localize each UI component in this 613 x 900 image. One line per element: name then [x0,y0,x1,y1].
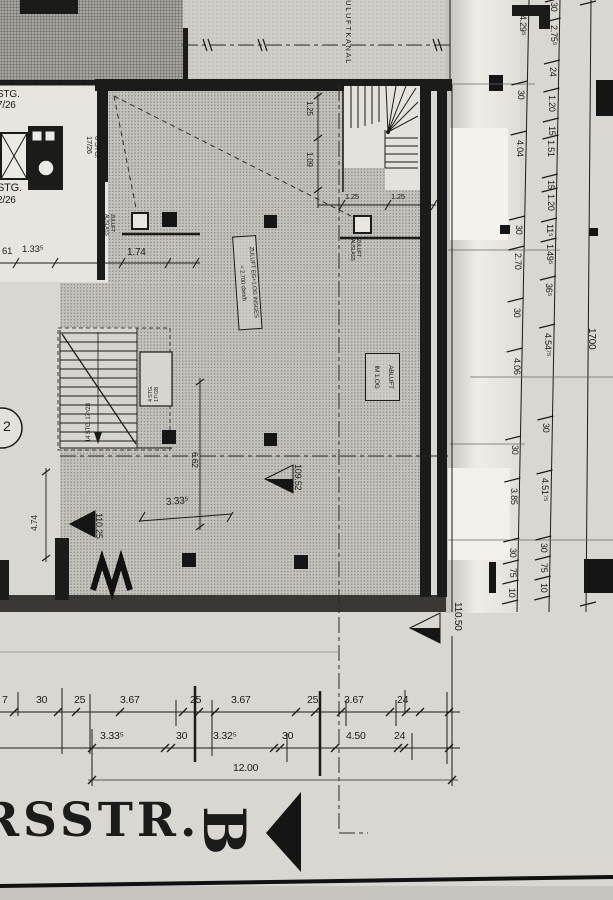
vent-left-line2: AUSLASS [103,214,109,236]
exhaust-note-line2: IM 1.OG [373,365,380,388]
dimension-label: 30 [176,731,187,743]
stair-core-mid-label: 6 STG. 17/26 [84,136,101,159]
duct-label: ZULUFTKANAL [344,0,352,65]
dimension-label: 12.00 [233,763,258,775]
outer-walls [0,0,550,600]
dimension-label: 30 [516,90,526,100]
dimension-label: 3.33⁵ [100,731,124,743]
dashed-diagonals [114,96,351,216]
dimension-label: 15 [546,180,556,190]
dim-109-vertical: 1.09 [304,152,313,167]
street-baseline [0,877,613,886]
linework [0,0,613,900]
dim-125-vertical: 1.25 [304,101,313,116]
dimension-label: 75 [539,563,549,573]
dimension-label: 1.51 [546,140,556,157]
dimension-label: 4.04 [515,140,525,157]
dimension-label: 30 [549,2,559,12]
dimension-label: 3.67 [231,695,251,707]
floor-plan-scan: ZULUFTKANAL STG. 7/26 6 STG. 17/26 STG. … [0,0,613,900]
dimension-label: 30 [512,308,522,318]
dimension-label: 30 [282,731,293,743]
dimension-label: 4.50 [346,731,366,743]
section-letter-b: B [191,806,256,855]
dim-125-b: 1.25 [391,193,405,201]
level-110-50: 110.50 [452,602,463,631]
dim-474: 4.74 [30,515,40,531]
dimension-label: 30 [541,423,551,433]
stair-box-label: 4 STG. 17⁵/28 [148,386,160,402]
dimension-label: 24 [397,695,408,707]
supply-note-line2: = 2.700 cbm/h [238,265,246,301]
dimension-label: 30 [36,695,47,707]
dim-overall-1700: 1700 [586,328,597,349]
section-arrow [266,792,301,872]
vent-left-line1: ZULUFT [109,214,115,232]
dimension-label: 2.70 [513,253,523,270]
drain-zigzag [93,560,130,590]
dimension-label: 4.54⁷⁵ [543,333,553,356]
dimension-label: 75 [508,568,518,578]
dim-662: 6.62 [189,452,199,468]
stair-core-lower-count: 2/26 [0,195,16,206]
exhaust-note-line1: ABLUFT [387,365,394,389]
dim-3335-interior: 3.33⁵ [166,495,189,508]
stair-box-line2: 17⁵/28 [154,387,160,402]
stair-core-lower-label: STG. [0,182,22,194]
level-110-25: 110.25 [94,513,104,539]
winder-stair [343,86,420,192]
dimension-label: 25 [307,695,318,707]
dimension-label: 30 [510,445,520,455]
stair-core-upper-count: 7/26 [0,100,16,111]
dimension-label: 1.20 [547,95,557,112]
dimension-label: 30 [508,548,518,558]
vent-right-line2: AUSLASS [349,239,355,261]
level-109-52: 109.52 [293,464,303,490]
dimension-label: 4.51⁷⁵ [540,478,550,501]
street-name: RSSTR. [0,795,200,848]
dimension-label: 24 [394,731,405,743]
dim-174: 1.74 [127,247,146,258]
dimension-label: 3.32⁵ [213,731,237,743]
dimension-label: 36⁵ [544,283,554,296]
vent-label-right: ZULUFT AUSLASS [349,239,360,261]
stair-run-label: 14 STG. 17⁵/28 [86,403,93,442]
level-markers [70,465,440,643]
dimension-label: 3.67 [120,695,140,707]
dimension-label: 4.29⁵ [518,15,528,35]
stair-core-mid-line2: 17/26 [85,136,94,154]
dimension-label: 1.20 [545,194,555,211]
exhaust-air-note: ABLUFT IM 1.OG [365,353,400,401]
vent-right-line1: ZULUFT [355,239,361,257]
supply-note-line1: ZULUFT EG+1.OG INSGES [248,247,259,318]
dimension-label: 4.06 [511,358,521,375]
dimension-label: 30 [539,543,549,553]
dim-125-a: 1.25 [345,193,359,201]
vent-label-left: ZULUFT AUSLASS [103,214,114,236]
dimension-label: 1.49⁵ [545,244,555,264]
dimension-label: 24 [548,67,558,77]
dimension-label: 2.75⁵ [548,25,558,45]
stair-core-upper-label: STG. [0,89,20,100]
dimension-label: 30 [514,225,524,235]
dimension-label: 3.85 [509,488,519,505]
dimension-label: 15 [547,126,557,136]
dimension-label: 7 [2,695,8,707]
dimension-label: 3.67 [344,695,364,707]
dim-61: 61 [2,247,12,258]
dimension-label: 11⁵ [545,224,555,236]
dimension-label: 25 [190,695,201,707]
dimension-label: 10 [538,583,548,593]
stair-core-mid-line1: 6 STG. [93,136,102,159]
dimension-label: 10 [507,588,517,598]
dimension-label: 25 [74,695,85,707]
grid-bubble-number: 2 [3,419,11,435]
dim-1335: 1.33⁵ [22,245,43,256]
